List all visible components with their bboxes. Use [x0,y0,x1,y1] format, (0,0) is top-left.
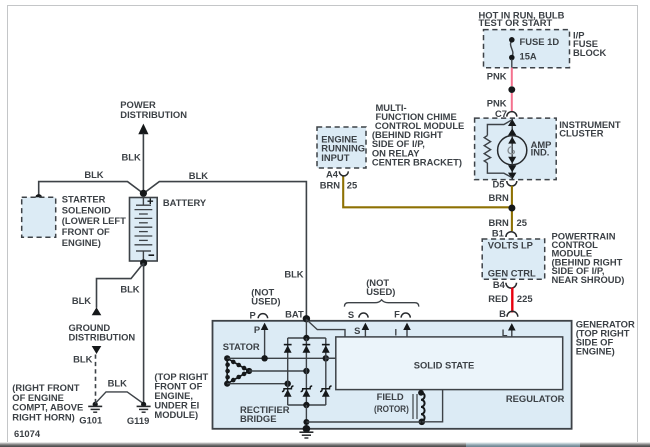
svg-text:D5: D5 [493,179,505,190]
svg-text:INPUT: INPUT [321,152,349,163]
svg-text:DISTRIBUTION: DISTRIBUTION [69,332,136,343]
svg-text:BRIDGE: BRIDGE [240,413,276,424]
svg-text:225: 225 [517,293,533,304]
svg-text:VOLTS LP: VOLTS LP [488,240,533,251]
svg-text:BLK: BLK [108,378,127,389]
svg-text:BRN: BRN [488,217,509,228]
svg-text:BLK: BLK [73,354,92,365]
svg-text:BLOCK: BLOCK [573,47,607,58]
svg-text:ENGINE): ENGINE) [576,345,615,356]
svg-text:FIELD: FIELD [377,391,404,402]
svg-text:S: S [354,325,360,336]
svg-text:(LOWER LEFT: (LOWER LEFT [62,215,126,226]
svg-text:F: F [394,309,400,320]
svg-text:B1: B1 [492,228,504,239]
svg-text:G119: G119 [127,415,149,426]
svg-text:STARTER: STARTER [62,193,106,204]
svg-text:ENGINE): ENGINE) [62,237,101,248]
svg-text:BRN: BRN [488,192,509,203]
svg-text:25: 25 [517,217,527,228]
svg-text:CLUSTER: CLUSTER [559,128,604,139]
svg-text:61074: 61074 [14,428,41,439]
svg-text:STATOR: STATOR [223,341,260,352]
svg-text:P: P [254,324,260,335]
svg-text:BLK: BLK [189,170,208,181]
svg-text:FUSE 1D: FUSE 1D [520,36,560,47]
svg-text:SOLID STATE: SOLID STATE [414,360,475,371]
svg-text:PNK: PNK [487,97,507,108]
svg-text:MODULE): MODULE) [154,409,198,420]
svg-text:B4: B4 [493,279,506,290]
svg-text:A4: A4 [326,169,339,180]
svg-text:RIGHT HORN): RIGHT HORN) [12,412,75,423]
svg-text:PNK: PNK [487,70,507,81]
svg-text:BLK: BLK [120,284,139,295]
svg-text:BLK: BLK [284,268,303,279]
svg-text:(ROTOR): (ROTOR) [374,403,409,414]
svg-text:BLK: BLK [122,151,141,162]
svg-text:S: S [348,309,354,320]
svg-text:TEST OR START: TEST OR START [479,17,553,28]
svg-text:G101: G101 [79,414,102,425]
svg-text:BATTERY: BATTERY [163,197,207,208]
svg-text:IND.: IND. [531,147,550,158]
svg-text:C7: C7 [495,108,507,119]
svg-text:GEN CTRL: GEN CTRL [488,268,536,279]
svg-text:DISTRIBUTION: DISTRIBUTION [120,109,187,120]
svg-text:BLK: BLK [72,295,91,306]
svg-text:RED: RED [488,293,508,304]
svg-text:BRN: BRN [320,179,341,190]
svg-text:USED): USED) [251,296,280,307]
svg-text:P: P [250,310,256,321]
svg-text:USED): USED) [366,286,395,297]
svg-text:SOLENOID: SOLENOID [62,204,111,215]
svg-text:B: B [499,308,506,319]
svg-text:REGULATOR: REGULATOR [506,393,565,404]
svg-text:FRONT OF: FRONT OF [62,226,110,237]
svg-text:25: 25 [347,179,357,190]
svg-text:BAT: BAT [285,308,304,319]
svg-text:I: I [394,326,397,337]
svg-text:BLK: BLK [84,169,103,180]
svg-text:NEAR SHROUD): NEAR SHROUD) [552,274,625,285]
svg-text:15A: 15A [520,50,537,61]
svg-text:CENTER BRACKET): CENTER BRACKET) [372,156,462,167]
